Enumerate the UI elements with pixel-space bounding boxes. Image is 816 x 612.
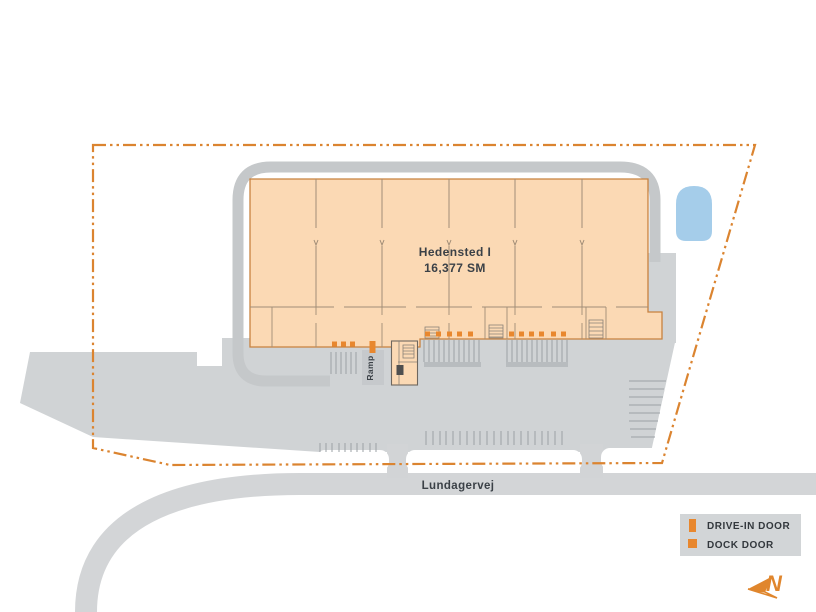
drive-in-door — [370, 341, 376, 353]
paved-apron — [20, 338, 676, 452]
legend-drive-in-label: DRIVE-IN DOOR — [707, 521, 790, 532]
parking-stripes-south — [426, 431, 562, 445]
ramp-label: Ramp — [365, 355, 375, 380]
driveway — [387, 444, 408, 478]
north-label: N — [766, 571, 783, 596]
annex-elevator — [397, 365, 404, 375]
verge-cutout — [406, 450, 582, 471]
drive-in-door-swatch-icon — [689, 519, 696, 532]
verge-cutout — [316, 450, 389, 471]
legend: DRIVE-IN DOOR DOCK DOOR — [680, 514, 801, 556]
verge-cutout — [601, 448, 668, 470]
pond — [676, 186, 712, 241]
dock-door-swatch-icon — [688, 539, 697, 548]
road-label: Lundagervej — [422, 480, 495, 492]
building-name: Hedensted I — [419, 245, 491, 259]
dock-apron-bar — [424, 362, 481, 367]
building-area: 16,377 SM — [424, 261, 486, 275]
dock-apron-bar — [506, 362, 568, 367]
driveway — [580, 444, 603, 478]
legend-dock-label: DOCK DOOR — [707, 540, 774, 551]
north-arrow-icon: N — [748, 571, 783, 598]
site-plan: Hedensted I 16,377 SM Ramp Lundagervej D… — [0, 0, 816, 612]
